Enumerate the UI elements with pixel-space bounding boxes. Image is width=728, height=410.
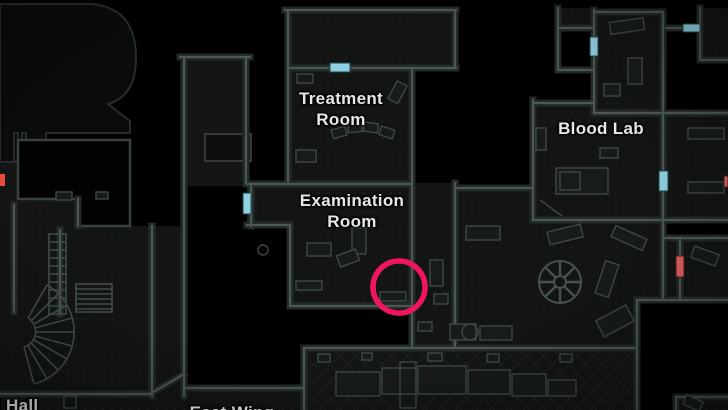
room-label-treatment-line2: Room xyxy=(299,109,383,130)
room-label-treatment: Treatment Room xyxy=(299,88,383,130)
game-map-screen: Treatment Room Examination Room Blood La… xyxy=(0,0,728,410)
door-marker-blue-treatment xyxy=(330,63,350,72)
room-label-examination-line1: Examination xyxy=(300,190,404,211)
door-marker-blue-examination xyxy=(243,193,251,214)
door-marker-blue-top-right xyxy=(590,37,598,56)
room-label-treatment-line1: Treatment xyxy=(299,88,383,109)
door-marker-red-right xyxy=(676,256,684,277)
door-marker-red-edge xyxy=(724,176,728,187)
room-label-east-wing-partial: East Wing xyxy=(190,402,275,410)
room-label-hall-partial: l Hall xyxy=(0,395,38,410)
room-label-examination: Examination Room xyxy=(300,190,404,232)
room-label-blood-lab: Blood Lab xyxy=(558,118,644,139)
door-marker-blue-corner xyxy=(683,24,700,32)
door-marker-blue-blood-lab xyxy=(659,171,668,191)
edge-marker-red-left xyxy=(0,174,5,186)
room-label-examination-line2: Room xyxy=(300,211,404,232)
